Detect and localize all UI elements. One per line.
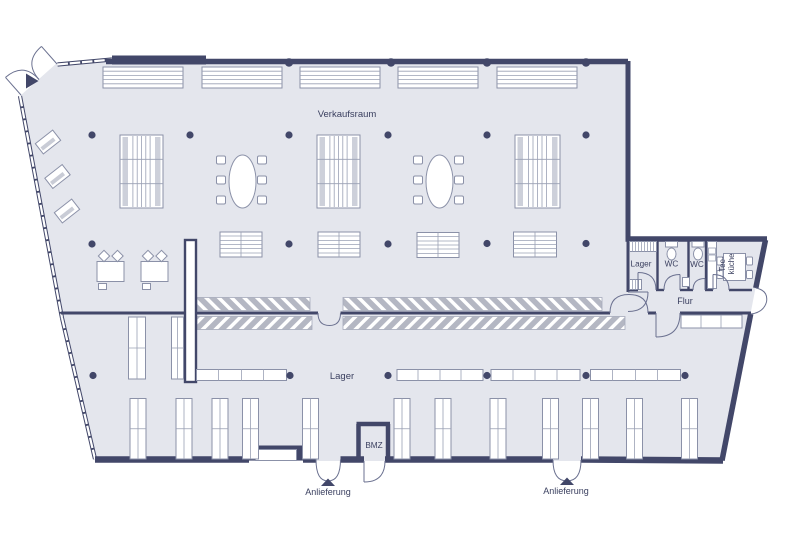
- checkout-counter-hatch: [343, 298, 602, 311]
- column: [582, 240, 589, 247]
- checkout-counter-hatch: [343, 317, 625, 330]
- room-label-bmz: BMZ: [365, 441, 382, 450]
- chair: [217, 196, 226, 204]
- chair: [143, 284, 151, 290]
- delivery-arrow: [560, 478, 574, 486]
- toilet: [692, 242, 704, 248]
- delivery-door-arc: [316, 460, 328, 482]
- column: [387, 58, 395, 66]
- wall-shelf: [398, 67, 478, 88]
- column: [582, 372, 589, 379]
- rack-side: [552, 137, 558, 206]
- square-table: [141, 262, 168, 282]
- column: [88, 240, 95, 247]
- entrance-door-leaf: [6, 77, 22, 95]
- rack-side: [155, 137, 161, 206]
- chair: [455, 196, 464, 204]
- room-label-teekueche-2: küche: [727, 254, 736, 275]
- column: [384, 240, 391, 247]
- column: [286, 372, 293, 379]
- column: [483, 240, 490, 247]
- delivery-door-arc: [328, 460, 341, 482]
- chair: [258, 156, 267, 164]
- rack-side: [518, 137, 524, 206]
- chair: [455, 156, 464, 164]
- room-label-lager: Lager: [330, 371, 354, 382]
- column: [285, 131, 292, 138]
- chair: [217, 156, 226, 164]
- oval-table: [426, 155, 453, 208]
- room-label-verkaufsraum: Verkaufsraum: [318, 109, 377, 120]
- chair: [414, 196, 423, 204]
- chair: [747, 257, 753, 265]
- chair: [217, 176, 226, 184]
- oval-table: [229, 155, 256, 208]
- room-label-wc-2: WC: [690, 260, 704, 269]
- bmz-door-arc: [364, 461, 385, 482]
- toilet: [666, 242, 678, 248]
- chair: [414, 176, 423, 184]
- wc-sink: [683, 278, 690, 287]
- column: [483, 58, 491, 66]
- annotation-anlieferung-2: Anlieferung: [543, 486, 589, 496]
- exit-door-arc: [756, 288, 767, 302]
- column: [285, 240, 292, 247]
- checkout-counter-hatch: [197, 298, 310, 311]
- loading-niche-door: [256, 450, 297, 461]
- plan-layers: VerkaufsraumLagerWCWCTee-kücheFlurLagerB…: [6, 46, 768, 497]
- room-label-wc-1: WC: [665, 260, 679, 269]
- column: [582, 131, 589, 138]
- bottom-wall-5: [581, 460, 723, 461]
- room-label-lager-klein: Lager: [631, 260, 652, 269]
- exit-door-arc: [751, 302, 767, 314]
- small-storage-shelf: [630, 242, 657, 252]
- column: [483, 372, 490, 379]
- column: [384, 131, 391, 138]
- storage-shelf-row: [491, 370, 580, 381]
- checkout-counter-hatch: [197, 317, 312, 330]
- toilet-bowl: [694, 248, 703, 260]
- column: [384, 372, 391, 379]
- toilet-bowl: [667, 248, 676, 260]
- rack-side: [320, 137, 326, 206]
- chair: [414, 156, 423, 164]
- chair: [747, 271, 753, 279]
- chair: [99, 284, 107, 290]
- column: [186, 131, 193, 138]
- delivery-door-arc: [567, 460, 581, 481]
- column: [88, 131, 95, 138]
- floor-plan-page: VerkaufsraumLagerWCWCTee-kücheFlurLagerB…: [0, 0, 794, 555]
- wall-shelf: [103, 67, 183, 88]
- storage-shelf-row: [681, 315, 742, 328]
- wall-shelf: [202, 67, 282, 88]
- rack-side: [123, 137, 129, 206]
- room-label-teekueche-1: Tee-: [718, 256, 727, 272]
- rack-side: [352, 137, 358, 206]
- column: [285, 58, 293, 66]
- wall-shelf: [300, 67, 380, 88]
- annotation-anlieferung-1: Anlieferung: [305, 487, 351, 497]
- column: [89, 372, 96, 379]
- entrance-door-leaf: [42, 46, 58, 64]
- chair: [258, 176, 267, 184]
- floor-plan: VerkaufsraumLagerWCWCTee-kücheFlurLagerB…: [0, 0, 794, 555]
- room-label-flur: Flur: [677, 296, 693, 306]
- column: [681, 372, 688, 379]
- wall-shelf: [497, 67, 577, 88]
- column: [483, 131, 490, 138]
- column: [582, 58, 590, 66]
- square-table: [97, 262, 124, 282]
- chair: [455, 176, 464, 184]
- chair: [258, 196, 267, 204]
- delivery-door-arc: [553, 460, 567, 481]
- partition-wall: [185, 240, 196, 382]
